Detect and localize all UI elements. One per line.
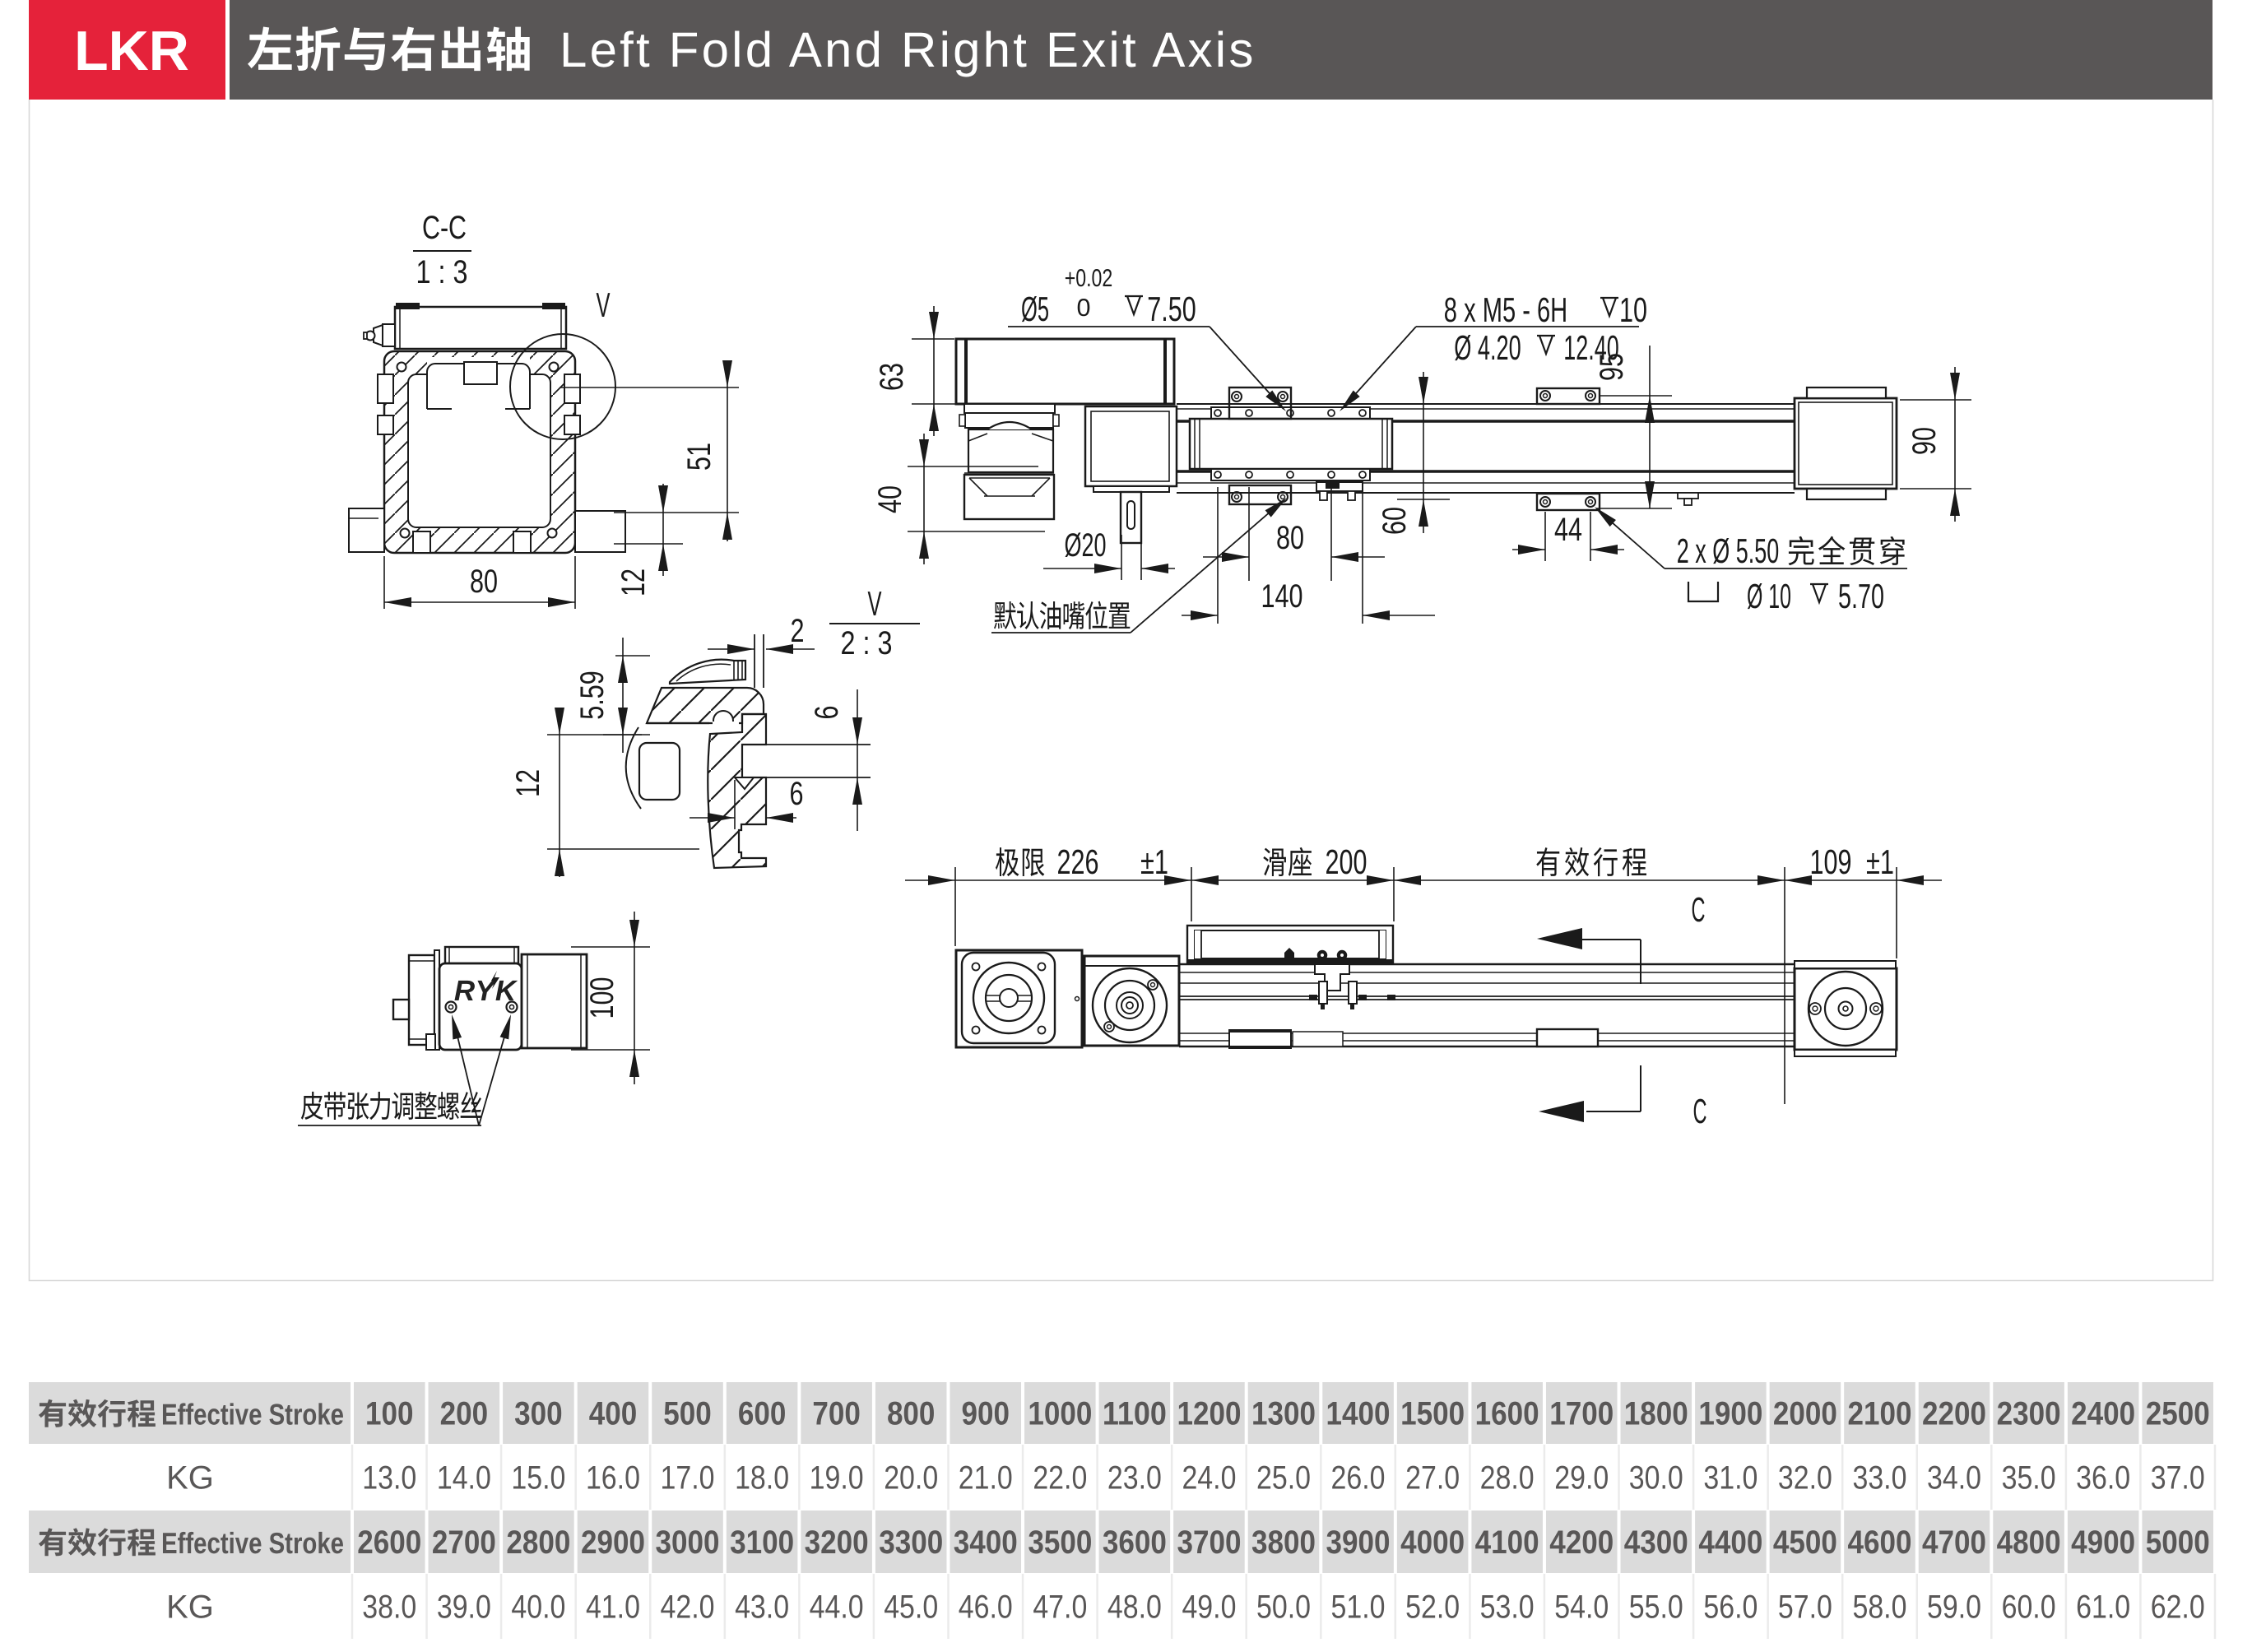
svg-text:400: 400 [589, 1396, 638, 1432]
svg-text:2700: 2700 [432, 1524, 496, 1561]
svg-text:48.0: 48.0 [1107, 1589, 1162, 1626]
svg-text:16.0: 16.0 [586, 1460, 640, 1497]
svg-text:58.0: 58.0 [1852, 1589, 1906, 1626]
svg-text:200: 200 [1326, 842, 1367, 881]
svg-text:±1: ±1 [1866, 842, 1894, 881]
svg-text:V: V [597, 285, 611, 324]
svg-text:1000: 1000 [1028, 1396, 1092, 1432]
svg-text:2500: 2500 [2146, 1396, 2210, 1432]
svg-text:5.59: 5.59 [574, 671, 611, 720]
svg-text:51: 51 [681, 443, 717, 471]
svg-text:25.0: 25.0 [1256, 1460, 1311, 1497]
svg-text:2200: 2200 [1922, 1396, 1986, 1432]
svg-text:13.0: 13.0 [362, 1460, 416, 1497]
svg-text:23.0: 23.0 [1107, 1460, 1162, 1497]
svg-text:3800: 3800 [1251, 1524, 1316, 1561]
svg-text:12: 12 [510, 769, 546, 797]
svg-text:5000: 5000 [2146, 1524, 2210, 1561]
svg-text:40.0: 40.0 [511, 1589, 565, 1626]
svg-text:33.0: 33.0 [1852, 1460, 1906, 1497]
svg-text:35.0: 35.0 [2002, 1460, 2056, 1497]
svg-text:3600: 3600 [1103, 1524, 1167, 1561]
svg-text:KG: KG [166, 1589, 214, 1626]
svg-text:1 : 3: 1 : 3 [416, 254, 468, 290]
svg-text:2100: 2100 [1847, 1396, 1911, 1432]
svg-text:LKR: LKR [74, 20, 189, 82]
svg-text:100: 100 [365, 1396, 414, 1432]
svg-text:46.0: 46.0 [959, 1589, 1013, 1626]
svg-text:800: 800 [887, 1396, 936, 1432]
svg-text:43.0: 43.0 [735, 1589, 789, 1626]
svg-text:44: 44 [1554, 512, 1582, 548]
svg-text:Left Fold And Right Exit Axis: Left Fold And Right Exit Axis [560, 22, 1256, 77]
svg-text:3200: 3200 [805, 1524, 869, 1561]
svg-text:4900: 4900 [2071, 1524, 2135, 1561]
svg-text:1700: 1700 [1549, 1396, 1614, 1432]
svg-text:2 : 3: 2 : 3 [841, 625, 893, 661]
svg-text:4100: 4100 [1475, 1524, 1539, 1561]
svg-text:8 x M5 - 6H: 8 x M5 - 6H [1444, 290, 1567, 329]
svg-text:61.0: 61.0 [2076, 1589, 2130, 1626]
svg-text:52.0: 52.0 [1405, 1589, 1460, 1626]
svg-text:24.0: 24.0 [1182, 1460, 1236, 1497]
svg-text:21.0: 21.0 [959, 1460, 1013, 1497]
svg-text:44.0: 44.0 [810, 1589, 864, 1626]
svg-text:3100: 3100 [730, 1524, 794, 1561]
svg-text:12: 12 [615, 568, 652, 596]
svg-text:1300: 1300 [1251, 1396, 1316, 1432]
svg-text:4000: 4000 [1400, 1524, 1465, 1561]
svg-text:500: 500 [663, 1396, 712, 1432]
svg-text:90: 90 [1906, 427, 1943, 455]
svg-text:7.50: 7.50 [1147, 290, 1196, 328]
svg-text:1900: 1900 [1698, 1396, 1762, 1432]
svg-text:2 x Ø 5.50: 2 x Ø 5.50 [1677, 531, 1780, 570]
svg-text:59.0: 59.0 [1927, 1589, 1981, 1626]
svg-text:53.0: 53.0 [1480, 1589, 1535, 1626]
svg-text:42.0: 42.0 [661, 1589, 715, 1626]
svg-text:60.0: 60.0 [2002, 1589, 2056, 1626]
svg-text:45.0: 45.0 [884, 1589, 938, 1626]
svg-text:27.0: 27.0 [1405, 1460, 1460, 1497]
svg-text:34.0: 34.0 [1927, 1460, 1981, 1497]
svg-text:31.0: 31.0 [1703, 1460, 1757, 1497]
svg-text:Ø 10: Ø 10 [1747, 577, 1791, 615]
svg-text:60: 60 [1377, 507, 1413, 535]
svg-text:2000: 2000 [1773, 1396, 1837, 1432]
svg-text:3300: 3300 [879, 1524, 943, 1561]
svg-text:29.0: 29.0 [1554, 1460, 1609, 1497]
svg-text:KG: KG [166, 1460, 214, 1497]
svg-text:36.0: 36.0 [2076, 1460, 2130, 1497]
svg-text:4700: 4700 [1922, 1524, 1986, 1561]
svg-text:39.0: 39.0 [437, 1589, 491, 1626]
svg-text:2300: 2300 [1997, 1396, 2061, 1432]
svg-text:2800: 2800 [506, 1524, 570, 1561]
svg-text:3700: 3700 [1177, 1524, 1241, 1561]
svg-text:10: 10 [1619, 290, 1647, 329]
svg-text:100: 100 [584, 977, 620, 1019]
svg-text:26.0: 26.0 [1331, 1460, 1386, 1497]
svg-text:Ø 4.20: Ø 4.20 [1454, 328, 1521, 367]
svg-text:4300: 4300 [1624, 1524, 1688, 1561]
svg-text:3500: 3500 [1028, 1524, 1092, 1561]
svg-text:2900: 2900 [581, 1524, 645, 1561]
svg-text:1800: 1800 [1624, 1396, 1688, 1432]
svg-text:4200: 4200 [1549, 1524, 1614, 1561]
svg-text:1600: 1600 [1475, 1396, 1539, 1432]
svg-text:200: 200 [440, 1396, 489, 1432]
svg-text:1200: 1200 [1177, 1396, 1241, 1432]
svg-text:V: V [868, 584, 882, 623]
svg-text:28.0: 28.0 [1480, 1460, 1535, 1497]
svg-text:+0.02: +0.02 [1065, 265, 1113, 292]
svg-text:1400: 1400 [1326, 1396, 1391, 1432]
svg-text:49.0: 49.0 [1182, 1589, 1236, 1626]
svg-text:3000: 3000 [656, 1524, 720, 1561]
svg-text:55.0: 55.0 [1629, 1589, 1683, 1626]
svg-text:0: 0 [1077, 295, 1091, 322]
svg-text:C: C [1693, 1092, 1707, 1130]
svg-text:700: 700 [812, 1396, 861, 1432]
svg-text:1100: 1100 [1103, 1396, 1167, 1432]
svg-text:C: C [1692, 890, 1706, 929]
svg-text:50.0: 50.0 [1256, 1589, 1311, 1626]
svg-text:3400: 3400 [954, 1524, 1018, 1561]
svg-text:41.0: 41.0 [586, 1589, 640, 1626]
svg-text:51.0: 51.0 [1331, 1589, 1386, 1626]
svg-text:4500: 4500 [1773, 1524, 1837, 1561]
svg-text:57.0: 57.0 [1778, 1589, 1832, 1626]
svg-text:300: 300 [514, 1396, 563, 1432]
svg-text:14.0: 14.0 [437, 1460, 491, 1497]
svg-text:30.0: 30.0 [1629, 1460, 1683, 1497]
svg-text:4600: 4600 [1847, 1524, 1911, 1561]
svg-text:17.0: 17.0 [661, 1460, 715, 1497]
svg-text:140: 140 [1261, 578, 1303, 615]
svg-text:56.0: 56.0 [1703, 1589, 1757, 1626]
svg-text:37.0: 37.0 [2151, 1460, 2205, 1497]
svg-text:109: 109 [1810, 842, 1852, 881]
svg-text:3900: 3900 [1326, 1524, 1391, 1561]
svg-text:Effective Stroke: Effective Stroke [161, 1398, 344, 1432]
svg-text:63: 63 [874, 363, 910, 391]
svg-text:6: 6 [809, 706, 845, 720]
svg-text:600: 600 [738, 1396, 787, 1432]
svg-text:1500: 1500 [1400, 1396, 1465, 1432]
svg-text:20.0: 20.0 [884, 1460, 938, 1497]
svg-text:2: 2 [791, 613, 805, 649]
svg-text:12.40: 12.40 [1563, 328, 1619, 367]
svg-text:2400: 2400 [2071, 1396, 2135, 1432]
svg-text:Ø5: Ø5 [1021, 290, 1049, 328]
svg-text:32.0: 32.0 [1778, 1460, 1832, 1497]
svg-text:40: 40 [872, 485, 908, 513]
svg-text:62.0: 62.0 [2151, 1589, 2205, 1626]
svg-text:47.0: 47.0 [1033, 1589, 1087, 1626]
svg-text:5.70: 5.70 [1838, 577, 1884, 615]
svg-text:2600: 2600 [357, 1524, 421, 1561]
svg-text:22.0: 22.0 [1033, 1460, 1087, 1497]
svg-text:4400: 4400 [1698, 1524, 1762, 1561]
svg-text:6: 6 [790, 776, 804, 812]
svg-text:Ø20: Ø20 [1065, 527, 1107, 564]
svg-text:900: 900 [962, 1396, 1010, 1432]
svg-text:Effective Stroke: Effective Stroke [161, 1526, 344, 1560]
svg-text:54.0: 54.0 [1554, 1589, 1609, 1626]
svg-text:80: 80 [1276, 520, 1304, 556]
svg-text:C-C: C-C [422, 210, 467, 246]
svg-text:4800: 4800 [1997, 1524, 2061, 1561]
svg-text:80: 80 [470, 564, 498, 600]
svg-text:226: 226 [1057, 842, 1099, 881]
svg-text:38.0: 38.0 [362, 1589, 416, 1626]
svg-text:±1: ±1 [1140, 842, 1168, 881]
svg-text:18.0: 18.0 [735, 1460, 789, 1497]
svg-text:15.0: 15.0 [511, 1460, 565, 1497]
svg-text:19.0: 19.0 [810, 1460, 864, 1497]
